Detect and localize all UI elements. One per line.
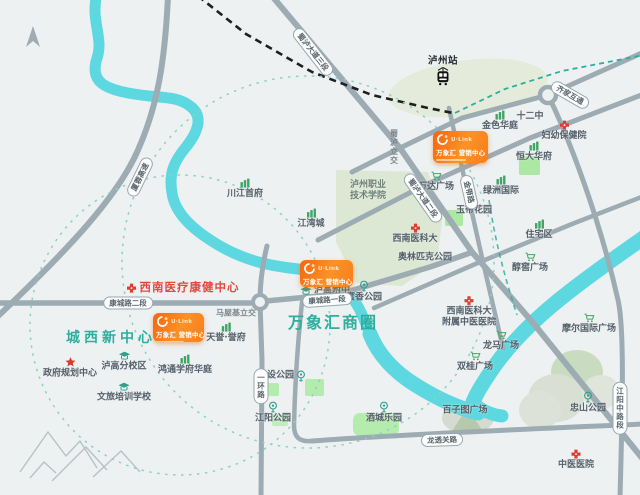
park-icon [359, 281, 369, 292]
road-pill-4: 齐家互通 [549, 79, 592, 111]
poi-label: 绿洲国际 [483, 186, 519, 197]
card-row: U·Link [153, 313, 204, 328]
poi-label: 江阳公园 [255, 414, 291, 425]
poi-label: 政府规划中心 [43, 369, 97, 380]
poi-label: 住宅区 [525, 230, 552, 241]
poi-label: 鸿通学府华庭 [158, 365, 212, 376]
poi-20: 双桂广场 [457, 351, 493, 373]
building-icon [180, 354, 190, 364]
poi-label: 文旅培训学校 [97, 393, 151, 404]
road-pill-5: 康城路二段 [103, 297, 153, 310]
poi-label: 中医医院 [558, 460, 594, 471]
poi-10: 泸州职业技术学院 [350, 180, 386, 202]
card-brand: U·Link [451, 137, 472, 143]
poi-28: 鸿通学府华庭 [158, 354, 212, 376]
card-name: 万象汇 营销中心 [433, 146, 488, 157]
project-card-2[interactable]: U·Link万象汇 营销中心 [300, 260, 353, 287]
road-pill-1: 蜀泸大道三段 [290, 26, 335, 79]
poi-2: 十二中 [516, 112, 543, 123]
poi-17: 西南医科大附属中医医院 [442, 296, 496, 329]
building-icon [496, 175, 506, 185]
poi-label: 十二中 [516, 112, 543, 123]
card-tagline-bar [156, 341, 184, 342]
poi-label: 江湾城 [297, 219, 324, 230]
road-pill-9: 龙透关路 [421, 433, 463, 447]
highlight-label: 西南医疗康健中心 [140, 281, 240, 295]
park-icon [268, 402, 278, 413]
ulink-logo-icon [436, 133, 449, 146]
poi-11: 西南医科大 [392, 223, 437, 245]
poi-18: 摩尔国际广场 [562, 313, 616, 335]
road-pill-7: 一环路 [254, 368, 269, 404]
poi-label: 西南医科大 [392, 234, 437, 245]
building-icon [529, 141, 539, 151]
cart-icon [469, 351, 480, 361]
card-name: 万象汇 营销中心 [300, 275, 353, 286]
poi-0: 泸州站 [428, 55, 458, 86]
building-icon [495, 110, 505, 120]
cart-icon [524, 252, 535, 262]
star-icon [64, 357, 75, 368]
poi-8: 住宅区 [525, 219, 552, 241]
card-tagline-bar [436, 159, 466, 161]
poi-label: 泸高分校区 [101, 362, 146, 373]
area-label-1: 万象汇商圈 [288, 309, 378, 333]
poi-27: 天誉·誉府 [206, 322, 245, 344]
park-icon [296, 371, 306, 382]
poi-23: 中医医院 [558, 449, 594, 471]
poi-label-line: 西南医科大 [442, 307, 496, 318]
poi-label: 泸州职业技术学院 [350, 180, 386, 202]
poi-label-line: 泸州职业 [350, 180, 386, 191]
ulink-logo-icon [156, 315, 169, 328]
poi-1: 金色华庭 [482, 110, 518, 132]
card-name: 万象汇 营销中心 [153, 328, 204, 339]
poi-label: 摩尔国际广场 [562, 324, 616, 335]
road-pill-8: 江阳中路段 [613, 382, 628, 435]
building-icon [221, 322, 231, 332]
road-pill-6: 康城路一段 [302, 292, 352, 308]
poi-label: 天誉·誉府 [206, 333, 245, 344]
poi-label-line: 附属中医医院 [442, 318, 496, 329]
ulink-logo-icon [303, 262, 316, 275]
poi-9: 醇窖广场 [512, 252, 548, 274]
road-pill-0: 厦蓉高速 [125, 155, 155, 198]
card-row: U·Link [300, 260, 353, 275]
label-layer: 泸州站金色华庭十二中妇幼保健院恒大华府绿洲国际万达广场玉带花园住宅区醇窖广场泸州… [0, 0, 640, 495]
building-icon [306, 208, 316, 218]
poi-3: 妇幼保健院 [541, 120, 586, 142]
building-icon [240, 178, 250, 188]
poi-label: 川江首府 [227, 189, 263, 200]
poi-5: 绿洲国际 [483, 175, 519, 197]
poi-26: 酒城乐园 [366, 402, 402, 425]
cart-icon [430, 171, 441, 181]
train-icon [435, 68, 451, 87]
poi-label: 百子图广场 [442, 406, 487, 417]
cart-icon [495, 330, 506, 340]
school-icon [118, 352, 130, 361]
poi-22: 忠山公园 [570, 392, 606, 415]
poi-label: 泸州站 [428, 55, 458, 66]
cart-icon [583, 313, 594, 323]
school-icon [118, 383, 130, 392]
poi-label: 醇窖广场 [512, 263, 548, 274]
poi-label: 双桂广场 [457, 362, 493, 373]
poi-label: 酒城乐园 [366, 414, 402, 425]
area-label-0: 城西新中心 [66, 327, 156, 347]
poi-16: 江湾城 [297, 208, 324, 230]
poi-label: 恒大华府 [516, 152, 552, 163]
park-icon [583, 392, 593, 403]
road-name-0: 蜀泸立交 [389, 129, 400, 165]
cross-icon [127, 283, 137, 293]
medical-center-highlight: 西南医疗康健中心 [127, 281, 240, 295]
cross-icon [410, 223, 420, 233]
project-card-1[interactable]: U·Link万象汇 营销中心 [433, 131, 488, 163]
poi-19: 龙马广场 [483, 330, 519, 352]
park-icon [379, 402, 389, 413]
poi-label-line: 技术学院 [350, 191, 386, 202]
poi-label: 奥林匹克公园 [398, 253, 452, 264]
poi-12: 奥林匹克公园 [398, 253, 452, 264]
poi-31: 政府规划中心 [43, 357, 97, 380]
poi-29: 泸高分校区 [101, 352, 146, 373]
poi-21: 百子图广场 [442, 406, 487, 417]
poi-label: 西南医科大附属中医医院 [442, 307, 496, 329]
project-card-3[interactable]: U·Link万象汇 营销中心 [153, 313, 204, 342]
card-brand: U·Link [171, 319, 192, 325]
building-icon [534, 219, 544, 229]
map-canvas: 泸州站金色华庭十二中妇幼保健院恒大华府绿洲国际万达广场玉带花园住宅区醇窖广场泸州… [0, 0, 640, 495]
card-brand: U·Link [318, 266, 339, 272]
poi-15: 川江首府 [227, 178, 263, 200]
cross-icon [464, 296, 474, 306]
poi-30: 文旅培训学校 [97, 383, 151, 404]
poi-label: 金色华庭 [482, 121, 518, 132]
poi-label: 忠山公园 [570, 404, 606, 415]
poi-4: 恒大华府 [516, 141, 552, 163]
road-name-1: 马屋基立交 [216, 308, 256, 319]
cross-icon [559, 120, 569, 130]
cross-icon [571, 449, 581, 459]
card-row: U·Link [433, 131, 488, 146]
poi-25: 江阳公园 [255, 402, 291, 425]
